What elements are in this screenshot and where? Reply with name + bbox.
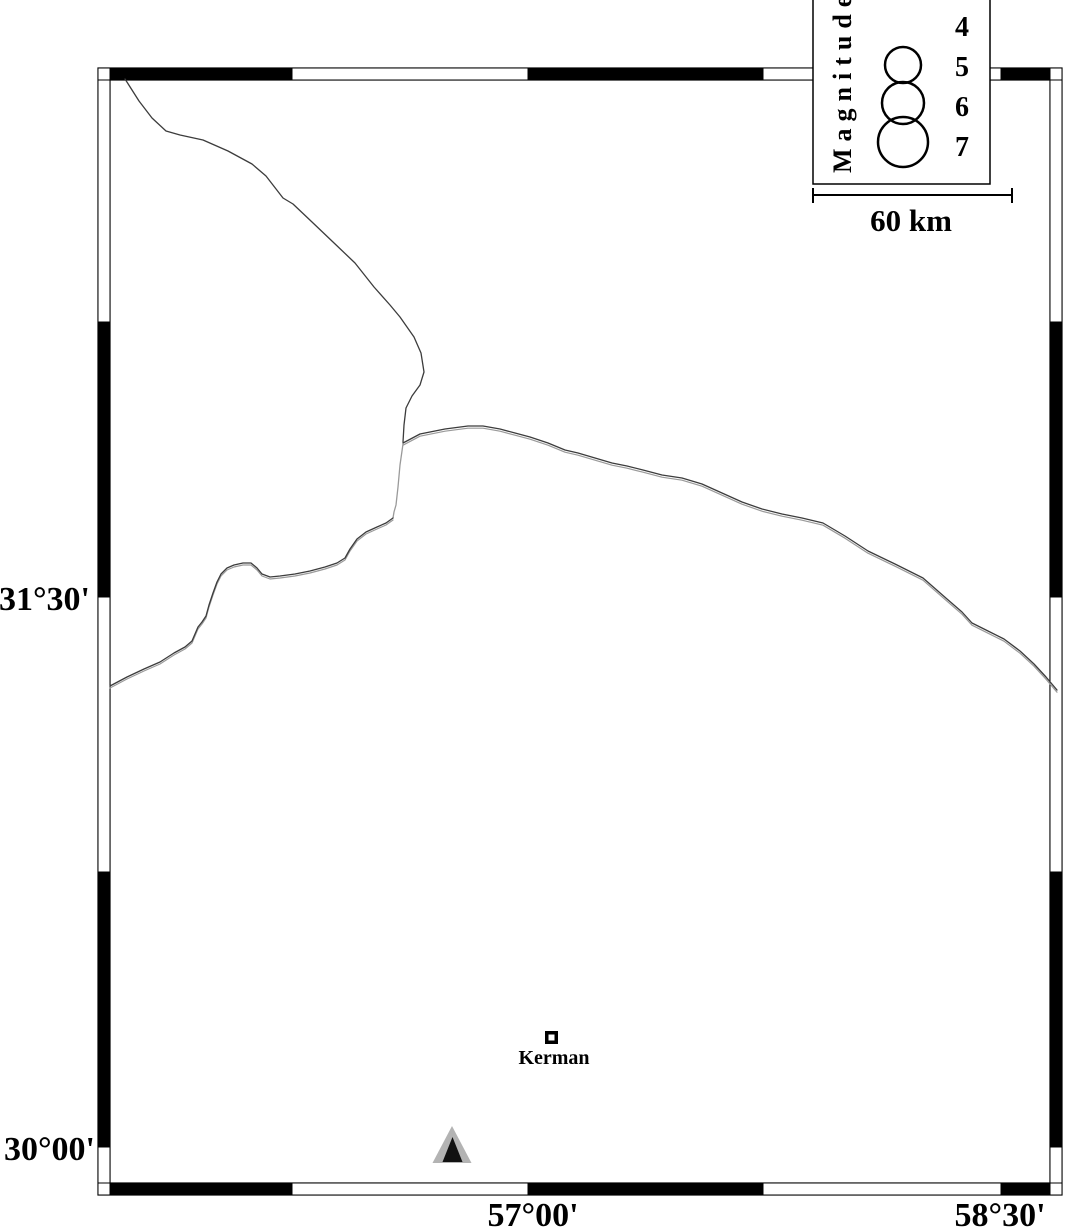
frame-tick-segment [1001,1183,1050,1195]
frame-tick-segment [528,1183,763,1195]
frame-tick-segment [763,1183,1001,1195]
lon-label-57-00: 57°00' [487,1197,578,1229]
frame-tick-segment [110,1183,292,1195]
frame-tick-segment [110,68,292,80]
frame-tick-segment [528,68,763,80]
legend-value-4: 4 [955,12,969,43]
legend-value-6: 6 [955,92,969,123]
lat-label-30-00: 30°00' [4,1131,95,1168]
frame-corner [1050,1183,1062,1195]
lon-label-58-30: 58°30' [954,1197,1045,1229]
frame-tick-segment [292,68,528,80]
map-line-east-shadow [403,428,1057,692]
frame-corner [98,1183,110,1195]
legend-value-5: 5 [955,52,969,83]
frame-tick-segment [1050,1147,1062,1183]
map-line-connector [393,444,403,518]
city-marker-kerman [547,1033,557,1043]
frame-tick-segment [1050,80,1062,322]
frame-tick-segment [98,322,110,597]
city-label-kerman: Kerman [518,1047,589,1069]
scale-bar-label: 60 km [870,203,952,238]
frame-tick-segment [98,80,110,322]
frame-tick-segment [98,597,110,872]
frame-tick-segment [1050,322,1062,597]
frame-corner [98,68,110,80]
map-line-east [403,426,1057,690]
seismicity-map: Kerman 31°30' 30°00' 57°00' 58°30' Magni… [0,0,1066,1229]
city-marker-group: Kerman [518,1033,589,1069]
coordinate-labels: 31°30' 30°00' 57°00' 58°30' [0,581,1046,1229]
map-line-southwest [110,518,393,686]
map-line-north [125,79,424,442]
frame-tick-segment [98,872,110,1147]
lat-label-31-30: 31°30' [0,581,90,618]
frame-tick-segment [292,1183,528,1195]
frame-tick-segment [1050,597,1062,872]
station-marker-group [433,1126,472,1163]
scale-bar: 60 km [813,188,1012,238]
frame-tick-segment [1001,68,1050,80]
legend-value-7: 7 [955,132,969,163]
frame-tick-segment [1050,872,1062,1147]
frame-inner-rect [110,80,1050,1183]
map-line-southwest-shadow [110,520,393,688]
frame-tick-segment [98,1147,110,1183]
legend-title-magnitude: Magnitude [828,0,857,173]
magnitude-legend: Magnitude 4 5 6 7 60 km [813,0,1012,238]
frame-corner [1050,68,1062,80]
